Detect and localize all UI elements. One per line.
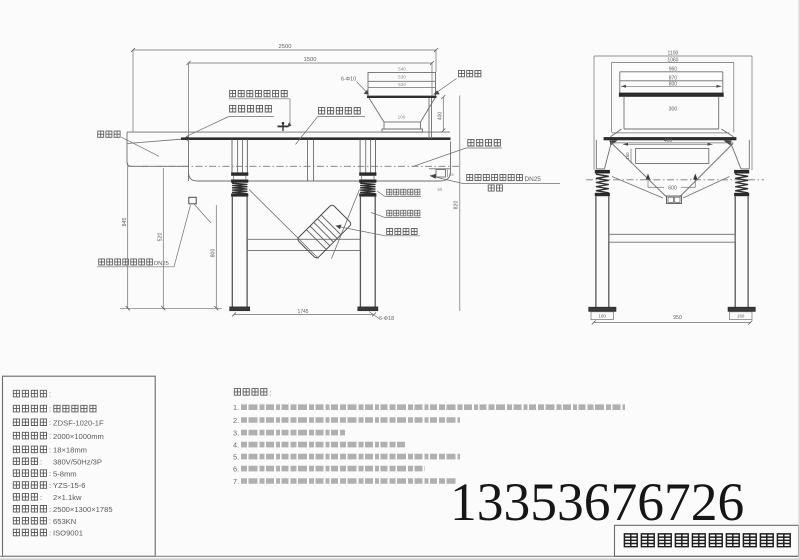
svg-text:300: 300 [669, 107, 678, 113]
svg-text::: : [49, 445, 51, 454]
svg-text:540: 540 [398, 67, 406, 72]
svg-text::: : [49, 432, 51, 441]
svg-text::: : [49, 390, 51, 399]
svg-text:1500: 1500 [304, 57, 317, 63]
svg-text:1060: 1060 [667, 57, 678, 63]
svg-text:YZS-15-6: YZS-15-6 [53, 481, 86, 490]
svg-text:2.: 2. [233, 416, 239, 425]
svg-text::: : [40, 457, 42, 466]
svg-text:520: 520 [158, 233, 164, 242]
svg-text::: : [49, 405, 51, 414]
svg-text:1745: 1745 [297, 309, 308, 315]
svg-text:520: 520 [398, 82, 406, 87]
svg-text:DN25: DN25 [154, 261, 169, 267]
svg-text:13353676726: 13353676726 [450, 472, 744, 532]
svg-text:150: 150 [625, 152, 630, 160]
svg-text:100: 100 [398, 115, 406, 120]
svg-text:845: 845 [122, 218, 128, 227]
svg-text:6-Φ10: 6-Φ10 [341, 77, 356, 83]
svg-text::: : [49, 505, 51, 514]
svg-text:DN25: DN25 [525, 176, 542, 183]
svg-text:2000×1000mm: 2000×1000mm [53, 432, 104, 441]
svg-text::: : [49, 529, 51, 538]
svg-text:ZDSF-1020-1F: ZDSF-1020-1F [53, 418, 104, 427]
svg-text:2500×1300×1785: 2500×1300×1785 [53, 505, 113, 514]
svg-text:380V/50Hz/3P: 380V/50Hz/3P [53, 458, 102, 467]
svg-text:50: 50 [438, 187, 443, 192]
svg-text:4.: 4. [233, 441, 239, 450]
svg-text:5.: 5. [233, 453, 239, 462]
svg-text::: : [40, 493, 42, 502]
svg-text:800: 800 [669, 82, 678, 88]
svg-text:6-Φ18: 6-Φ18 [379, 316, 394, 322]
svg-text::: : [49, 481, 51, 490]
svg-text:1100: 1100 [668, 51, 679, 57]
svg-text:2500: 2500 [279, 44, 292, 50]
svg-text:160: 160 [737, 314, 745, 319]
svg-text:7.: 7. [233, 477, 239, 486]
svg-text:653KN: 653KN [53, 517, 76, 526]
svg-text::: : [270, 388, 272, 397]
svg-text:6.: 6. [233, 465, 239, 474]
svg-text:1.: 1. [233, 403, 239, 412]
svg-text:530: 530 [398, 75, 406, 80]
svg-text:160: 160 [599, 314, 607, 319]
svg-text:400: 400 [438, 112, 444, 121]
svg-text:400: 400 [664, 138, 673, 144]
svg-text::: : [49, 469, 51, 478]
svg-text::: : [49, 517, 51, 526]
svg-text:600: 600 [668, 185, 677, 191]
svg-text:950: 950 [673, 315, 682, 321]
svg-text:3.: 3. [233, 429, 239, 438]
svg-text:2×1.1kw: 2×1.1kw [53, 493, 82, 502]
svg-text:800: 800 [211, 249, 217, 258]
svg-text:960: 960 [669, 67, 678, 73]
svg-text:18×18mm: 18×18mm [53, 446, 87, 455]
svg-text:5-8mm: 5-8mm [53, 469, 77, 478]
svg-text::: : [49, 418, 51, 427]
svg-text:45: 45 [449, 172, 454, 177]
svg-text:820: 820 [454, 201, 460, 210]
svg-text:ISO9001: ISO9001 [53, 529, 83, 538]
